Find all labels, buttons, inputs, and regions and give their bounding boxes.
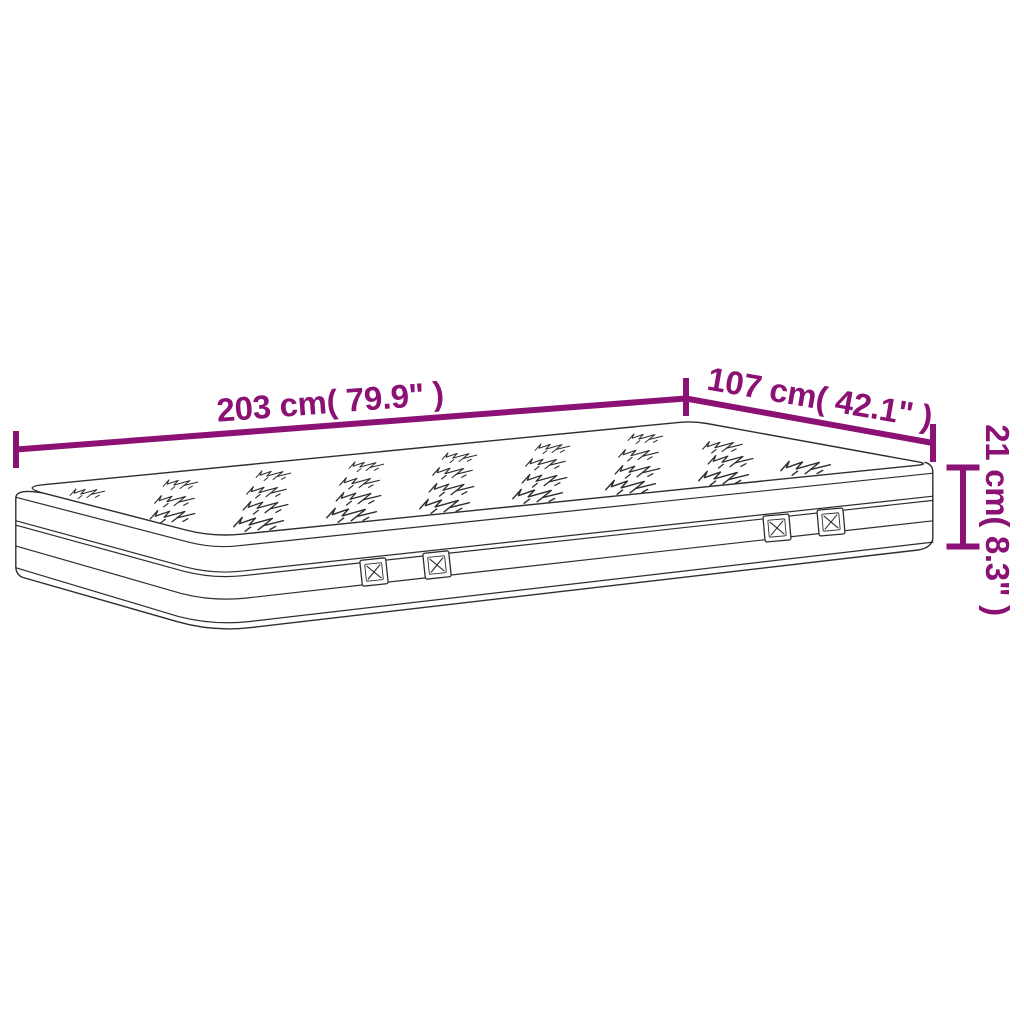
mattress-drawing (16, 422, 933, 629)
air-vent-icon (763, 514, 791, 542)
height-dimension-line (947, 468, 980, 547)
air-vent-icon (423, 551, 452, 580)
product-dimension-diagram: 203 cm( 79.9" ) 107 cm( 42.1" ) 21 cm( 8… (0, 0, 1024, 1024)
air-vent-icon (360, 558, 389, 587)
height-dimension-label: 21 cm( 8.3" ) (979, 424, 1016, 616)
air-vent-icon (817, 508, 845, 536)
